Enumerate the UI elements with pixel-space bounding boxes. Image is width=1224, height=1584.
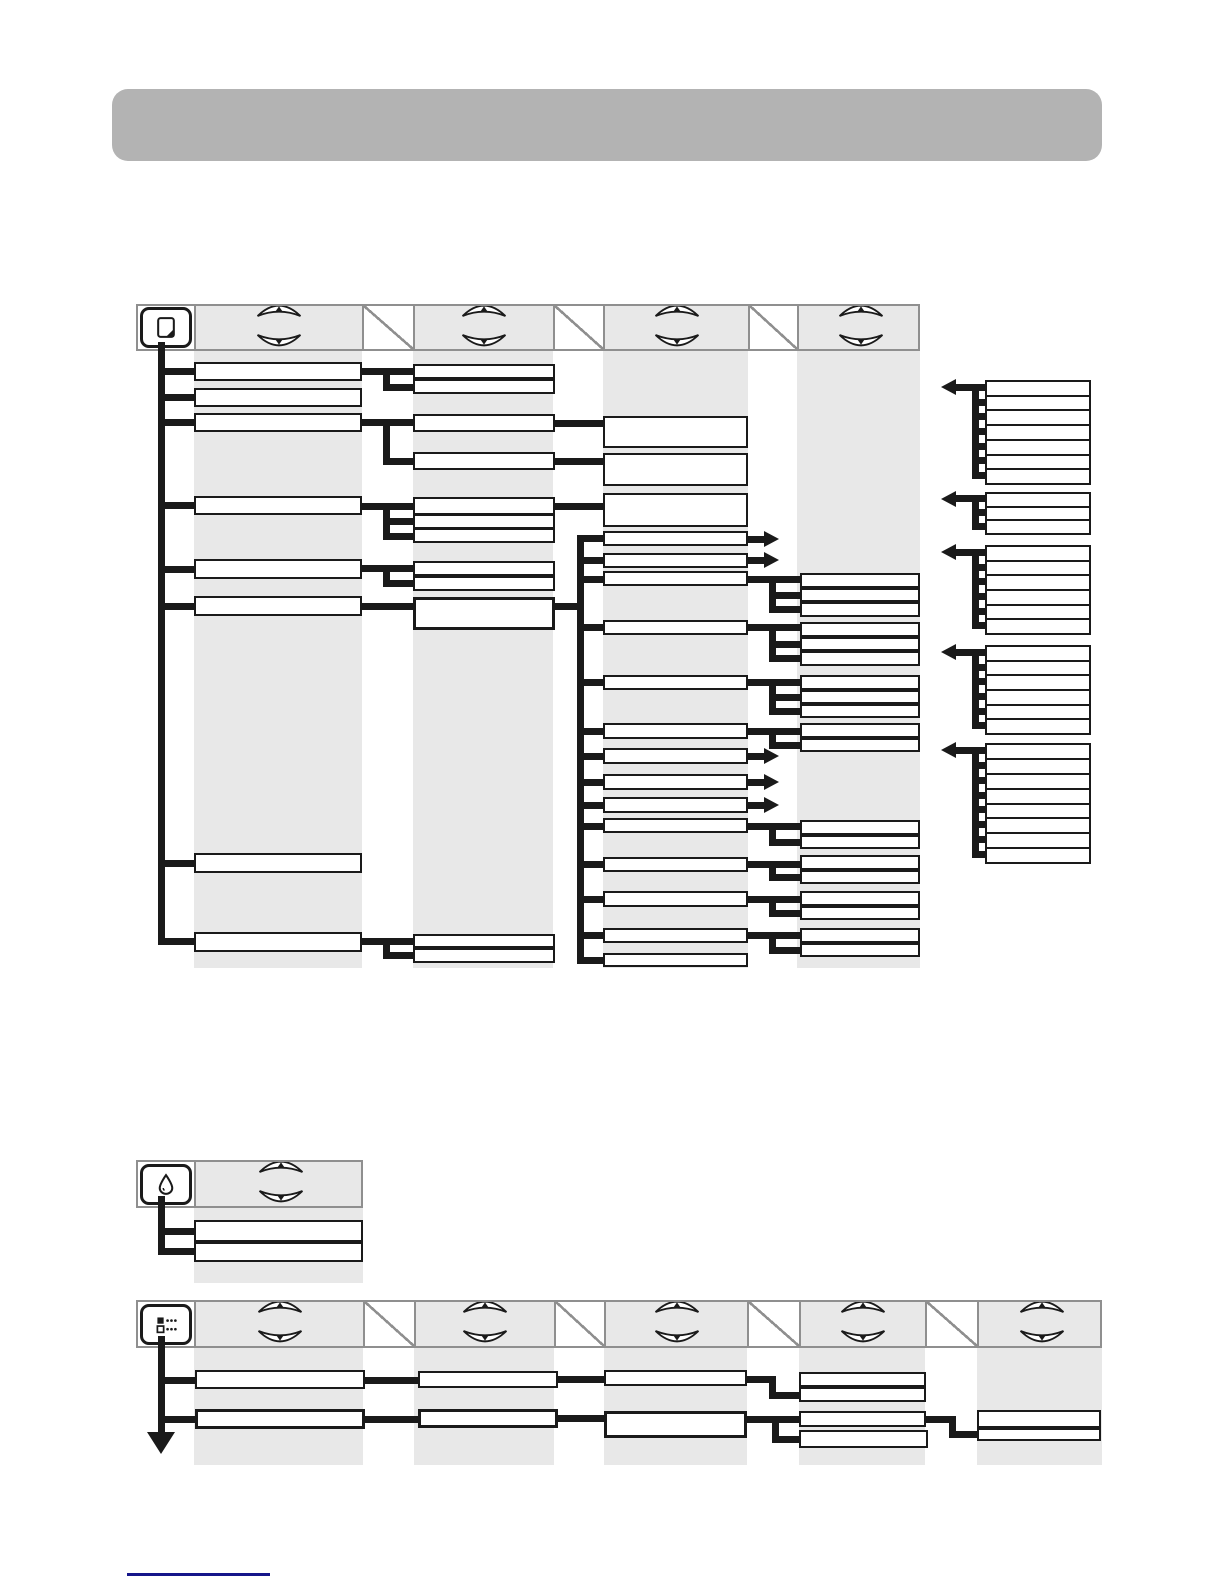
- scroll-buttons-cell: [416, 1302, 556, 1346]
- connector-line: [158, 368, 194, 375]
- column-band: [413, 351, 553, 968]
- menu-item-box: [194, 413, 362, 432]
- connector-line: [577, 728, 603, 735]
- menu-item-box: [800, 891, 920, 906]
- menu-item-box: [418, 1409, 558, 1428]
- menu-item-box: [800, 906, 920, 920]
- menu-item-box: [413, 948, 555, 963]
- menu-item-box: [413, 414, 555, 432]
- menu-item-box: [603, 857, 748, 872]
- up-arrow-button-icon: [654, 304, 700, 326]
- menu-item-box: [413, 497, 555, 515]
- slash-cell: [927, 1302, 979, 1346]
- connector-line: [383, 518, 413, 525]
- connector-line: [954, 747, 985, 754]
- connector-line: [383, 580, 413, 587]
- menu-item-box: [194, 1242, 363, 1262]
- continue-down-arrow-icon: [147, 1432, 175, 1454]
- up-arrow-button-icon: [840, 1300, 886, 1322]
- connector-line: [360, 603, 413, 610]
- menu-item-box: [985, 718, 1091, 735]
- down-arrow-button-icon: [840, 1326, 886, 1348]
- menu-item-box: [413, 528, 555, 543]
- menu-item-box: [800, 704, 920, 718]
- connector-line: [772, 1436, 799, 1443]
- connector-line: [383, 384, 413, 391]
- menu-item-box: [413, 452, 555, 470]
- connector-line: [748, 536, 764, 543]
- menu-item-box: [194, 362, 362, 381]
- menu-item-box: [603, 675, 748, 690]
- connector-line: [972, 792, 985, 799]
- menu-item-box: [603, 797, 748, 813]
- down-arrow-button-icon: [462, 1326, 508, 1348]
- menu-item-box: [194, 596, 362, 616]
- connector-line: [972, 578, 985, 585]
- connector-line: [577, 535, 603, 542]
- menu-item-box: [800, 622, 920, 637]
- down-arrow-button-icon: [461, 330, 507, 352]
- connector-line: [972, 593, 985, 600]
- menu-item-box: [604, 1411, 747, 1438]
- connector-line: [769, 606, 800, 613]
- menu-item-box: [985, 847, 1091, 864]
- connector-line: [577, 557, 603, 564]
- scroll-buttons-cell: [605, 306, 750, 349]
- connector-line: [383, 952, 413, 959]
- up-arrow-button-icon: [256, 304, 302, 326]
- connector-line: [769, 694, 800, 701]
- menu-item-box: [800, 690, 920, 704]
- slash-cell: [750, 306, 799, 349]
- connector-line: [553, 503, 603, 510]
- continue-right-arrow-icon: [764, 552, 779, 568]
- connector-line: [577, 823, 603, 830]
- connector-line: [577, 753, 603, 760]
- scroll-buttons-cell: [979, 1302, 1102, 1346]
- menu-list-icon: [140, 1304, 192, 1345]
- menu-item-box: [413, 514, 555, 529]
- menu-item-box: [603, 416, 748, 448]
- down-arrow-button-icon: [654, 330, 700, 352]
- connector-line: [558, 1415, 605, 1422]
- connector-line: [158, 566, 194, 573]
- connector-line: [972, 457, 985, 464]
- connector-line: [972, 821, 985, 828]
- connector-line: [577, 802, 603, 809]
- ink-drop-icon-cell: [138, 1162, 196, 1206]
- setup-menu-panel-header: [136, 1300, 1102, 1348]
- connector-line: [972, 413, 985, 420]
- menu-item-box: [194, 559, 362, 579]
- menu-item-box: [800, 943, 920, 957]
- connector-line: [383, 533, 413, 540]
- menu-item-box: [413, 561, 555, 576]
- scroll-buttons-cell: [196, 1302, 365, 1346]
- menu-item-box: [799, 1430, 928, 1448]
- connector-line: [769, 708, 800, 715]
- connector-line: [972, 777, 985, 784]
- menu-item-box: [800, 588, 920, 602]
- menu-item-box: [800, 928, 920, 943]
- connector-line: [577, 896, 603, 903]
- connector-line: [158, 394, 194, 401]
- connector-line: [972, 428, 985, 435]
- connector-line: [972, 509, 985, 516]
- paper-icon: [140, 307, 192, 348]
- down-arrow-button-icon: [654, 1326, 700, 1348]
- connector-line: [769, 655, 800, 662]
- connector-line: [769, 1392, 799, 1399]
- up-arrow-button-icon: [257, 1300, 303, 1322]
- connector-line: [553, 458, 603, 465]
- connector-line: [949, 1431, 977, 1438]
- connector-line: [972, 851, 985, 858]
- title-banner: [112, 89, 1102, 161]
- connector-line: [158, 1416, 195, 1423]
- column-band: [194, 351, 362, 968]
- menu-item-box: [800, 602, 920, 617]
- up-arrow-button-icon: [838, 304, 884, 326]
- menu-item-box: [985, 519, 1091, 535]
- scroll-buttons-cell: [606, 1302, 749, 1346]
- menu-item-box: [985, 618, 1091, 635]
- paper-menu-panel-header: [136, 304, 920, 351]
- connector-line: [558, 1376, 605, 1383]
- connector-line: [158, 1228, 194, 1235]
- menu-item-box: [603, 953, 748, 967]
- connector-line: [769, 641, 800, 648]
- connector-line: [748, 802, 764, 809]
- menu-item-box: [985, 468, 1091, 485]
- menu-item-box: [800, 738, 920, 752]
- menu-item-box: [603, 723, 748, 739]
- menu-item-box: [603, 891, 748, 907]
- menu-item-box: [603, 928, 748, 943]
- slash-cell: [555, 306, 605, 349]
- connector-line: [158, 419, 194, 426]
- connector-line: [769, 910, 800, 917]
- connector-line: [769, 874, 800, 881]
- connector-line: [158, 1248, 194, 1255]
- connector-line: [954, 549, 985, 556]
- menu-item-box: [413, 597, 555, 630]
- menu-item-box: [800, 723, 920, 738]
- menu-item-box: [977, 1428, 1101, 1441]
- connector-line: [972, 836, 985, 843]
- menu-item-box: [603, 620, 748, 635]
- connector-line: [577, 861, 603, 868]
- menu-item-box: [194, 853, 362, 873]
- connector-line: [748, 753, 764, 760]
- menu-item-box: [194, 388, 362, 407]
- connector-line: [972, 722, 985, 729]
- connector-line: [972, 664, 985, 671]
- scroll-buttons-cell: [196, 1162, 363, 1206]
- connector-line: [954, 649, 985, 656]
- menu-item-box: [800, 820, 920, 835]
- connector-line: [748, 557, 764, 564]
- connector-line: [158, 860, 194, 867]
- menu-item-box: [413, 379, 555, 394]
- connector-line: [577, 957, 603, 964]
- menu-item-box: [194, 1220, 363, 1242]
- column-band: [977, 1348, 1102, 1465]
- up-arrow-button-icon: [461, 304, 507, 326]
- menu-item-box: [603, 774, 748, 790]
- menu-item-box: [603, 553, 748, 568]
- down-arrow-button-icon: [258, 1186, 304, 1208]
- menu-item-box: [413, 576, 555, 591]
- slash-cell: [749, 1302, 801, 1346]
- menu-item-box: [413, 364, 555, 379]
- connector-line: [158, 1377, 195, 1384]
- connector-line: [954, 384, 985, 391]
- down-arrow-button-icon: [1019, 1326, 1065, 1348]
- slash-cell: [365, 1302, 416, 1346]
- menu-item-box: [195, 1409, 365, 1429]
- column-band: [604, 1348, 747, 1465]
- up-arrow-button-icon: [258, 1160, 304, 1182]
- connector-line: [769, 592, 800, 599]
- column-band: [414, 1348, 554, 1465]
- scroll-buttons-cell: [415, 306, 555, 349]
- menu-item-box: [799, 1372, 926, 1387]
- connector-line: [972, 564, 985, 571]
- continue-right-arrow-icon: [764, 531, 779, 547]
- connector-line: [769, 839, 800, 846]
- menu-item-box: [800, 835, 920, 849]
- scroll-buttons-cell: [799, 306, 920, 349]
- connector-line: [383, 458, 413, 465]
- menu-map-page: [0, 0, 1224, 1584]
- scroll-buttons-cell: [196, 306, 364, 349]
- down-arrow-button-icon: [257, 1326, 303, 1348]
- connector-line: [972, 678, 985, 685]
- menu-item-box: [800, 651, 920, 666]
- connector-line: [972, 708, 985, 715]
- connector-line: [158, 938, 194, 945]
- menu-item-box: [799, 1411, 926, 1427]
- connector-line: [972, 806, 985, 813]
- up-arrow-button-icon: [654, 1300, 700, 1322]
- footer-rule: [127, 1573, 270, 1576]
- connector-line: [158, 342, 165, 945]
- menu-item-box: [194, 496, 362, 515]
- menu-item-box: [194, 932, 362, 952]
- menu-item-box: [603, 531, 748, 546]
- paper-icon-cell: [138, 306, 196, 349]
- ink-drop-icon: [140, 1164, 192, 1205]
- connector-line: [972, 399, 985, 406]
- continue-right-arrow-icon: [764, 748, 779, 764]
- connector-line: [158, 1196, 165, 1254]
- menu-item-box: [800, 870, 920, 884]
- menu-item-box: [604, 1370, 747, 1386]
- down-arrow-button-icon: [256, 330, 302, 352]
- connector-line: [577, 576, 603, 583]
- connector-line: [158, 502, 194, 509]
- connector-line: [954, 495, 985, 502]
- menu-item-box: [195, 1370, 365, 1389]
- connector-line: [577, 779, 603, 786]
- down-arrow-button-icon: [838, 330, 884, 352]
- menu-item-box: [603, 818, 748, 833]
- connector-line: [553, 420, 603, 427]
- menu-item-box: [800, 573, 920, 588]
- connector-line: [972, 622, 985, 629]
- ink-menu-panel-header: [136, 1160, 363, 1208]
- connector-line: [972, 693, 985, 700]
- menu-item-box: [800, 675, 920, 690]
- connector-line: [972, 523, 985, 530]
- menu-item-box: [799, 1387, 926, 1402]
- menu-item-box: [603, 748, 748, 764]
- slash-cell: [556, 1302, 606, 1346]
- menu-item-box: [800, 637, 920, 651]
- menu-list-icon-cell: [138, 1302, 196, 1346]
- continue-right-arrow-icon: [764, 797, 779, 813]
- connector-line: [577, 624, 603, 631]
- connector-line: [972, 443, 985, 450]
- menu-item-box: [800, 855, 920, 870]
- slash-cell: [364, 306, 415, 349]
- column-band: [194, 1348, 363, 1465]
- connector-line: [577, 679, 603, 686]
- up-arrow-button-icon: [462, 1300, 508, 1322]
- menu-item-box: [603, 493, 748, 527]
- connector-line: [365, 1377, 418, 1384]
- menu-item-box: [413, 934, 555, 948]
- menu-item-box: [418, 1371, 558, 1388]
- menu-item-box: [603, 571, 748, 586]
- connector-line: [577, 932, 603, 939]
- connector-line: [972, 608, 985, 615]
- connector-line: [365, 1416, 418, 1423]
- up-arrow-button-icon: [1019, 1300, 1065, 1322]
- connector-line: [972, 472, 985, 479]
- menu-item-box: [603, 453, 748, 486]
- connector-line: [748, 779, 764, 786]
- continue-right-arrow-icon: [764, 774, 779, 790]
- connector-line: [158, 603, 194, 610]
- scroll-buttons-cell: [801, 1302, 927, 1346]
- menu-item-box: [977, 1410, 1101, 1428]
- connector-line: [972, 762, 985, 769]
- connector-line: [769, 947, 800, 954]
